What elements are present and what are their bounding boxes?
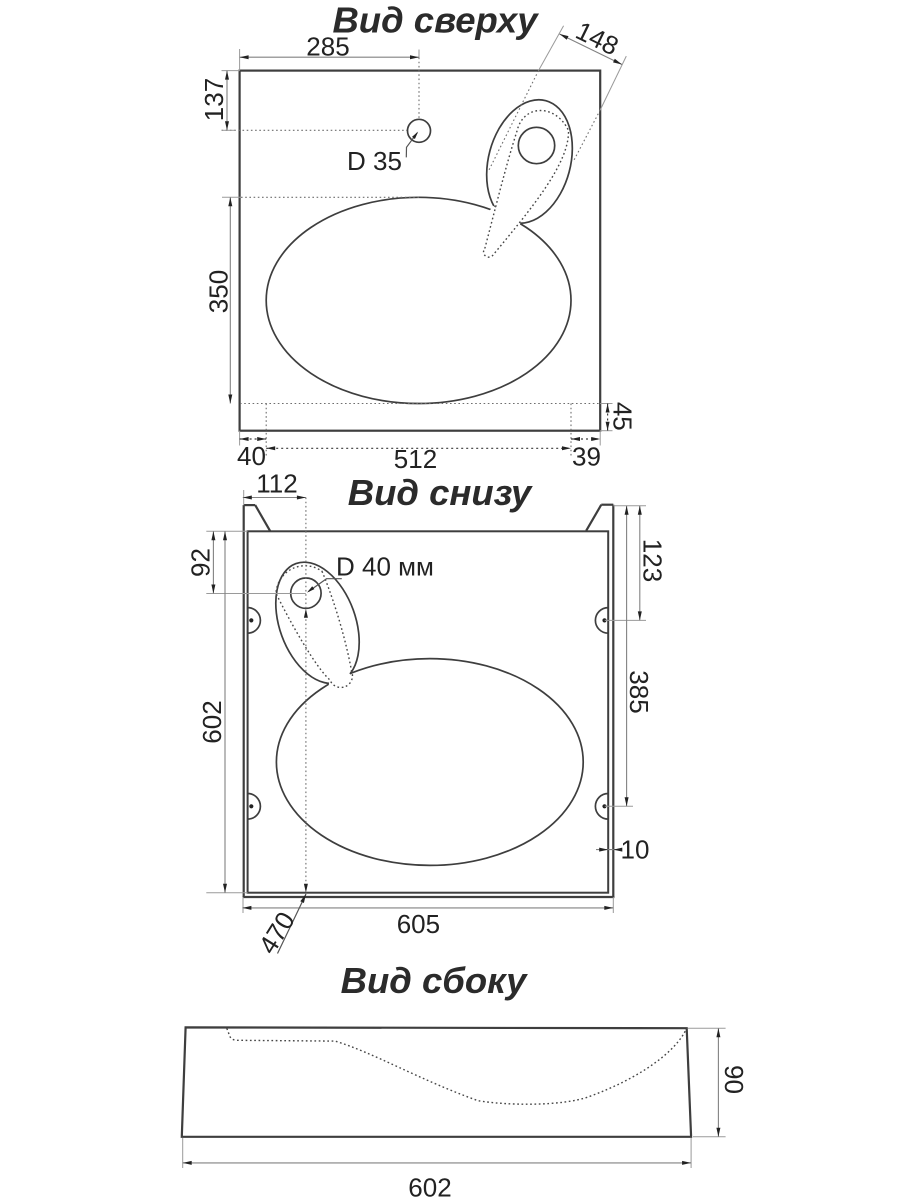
svg-text:10: 10 bbox=[621, 834, 650, 864]
svg-text:350: 350 bbox=[203, 270, 233, 313]
svg-text:Вид снизу: Вид снизу bbox=[348, 472, 533, 513]
svg-text:123: 123 bbox=[638, 539, 668, 582]
svg-text:385: 385 bbox=[624, 670, 654, 713]
svg-text:112: 112 bbox=[256, 469, 297, 499]
svg-text:512: 512 bbox=[394, 444, 437, 474]
svg-text:285: 285 bbox=[306, 31, 349, 61]
svg-text:137: 137 bbox=[199, 78, 229, 121]
svg-text:605: 605 bbox=[397, 909, 440, 939]
svg-text:40: 40 bbox=[237, 441, 266, 471]
svg-text:D 40 мм: D 40 мм bbox=[336, 552, 434, 582]
svg-text:602: 602 bbox=[197, 700, 227, 743]
svg-text:D 35: D 35 bbox=[347, 146, 402, 176]
svg-text:90: 90 bbox=[719, 1065, 749, 1094]
svg-text:45: 45 bbox=[608, 402, 638, 431]
svg-text:Вид сверху: Вид сверху bbox=[332, 0, 539, 41]
svg-text:39: 39 bbox=[572, 441, 601, 471]
svg-text:602: 602 bbox=[408, 1172, 451, 1200]
svg-text:Вид сбоку: Вид сбоку bbox=[341, 960, 528, 1001]
svg-text:92: 92 bbox=[185, 548, 215, 577]
